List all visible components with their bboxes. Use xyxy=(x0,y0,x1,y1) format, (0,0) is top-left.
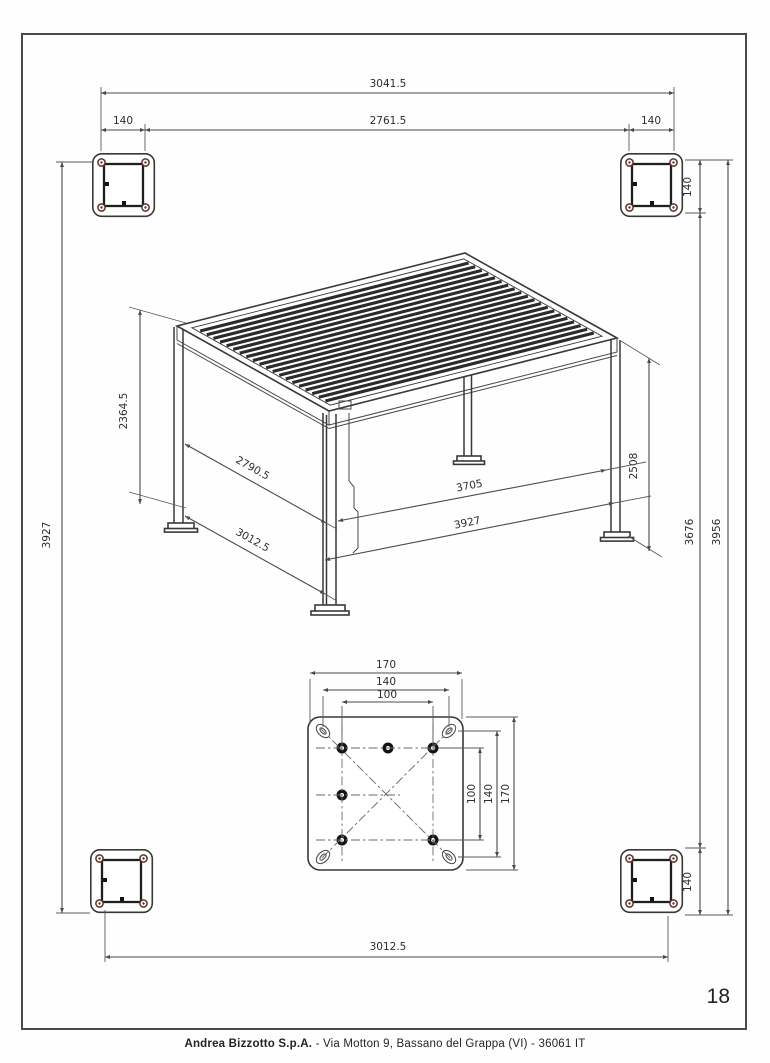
dim-label-depth-outer: 3012.5 xyxy=(234,526,272,554)
corner-plate-top-right xyxy=(621,154,683,217)
dim-side-offset-bottom: 140 xyxy=(682,848,700,915)
dim-label-plate-top-inner: 100 xyxy=(377,689,397,701)
dim-label-side-offset-top: 140 xyxy=(682,177,694,197)
dim-plate-side-mid: 140 xyxy=(483,731,497,857)
dim-label-width-outer: 3927 xyxy=(453,515,482,532)
dim-label-top-offset-left: 140 xyxy=(113,115,133,127)
dim-bottom-span: 3012.5 xyxy=(105,910,668,962)
dim-depth-outer: 3012.5 xyxy=(185,516,337,601)
dim-width-outer: 3927 xyxy=(325,496,651,560)
dim-label-rear-post-height: 2364.5 xyxy=(118,393,130,430)
dim-plate-top-outer: 170 xyxy=(310,659,462,673)
dim-side-offset-top: 140 xyxy=(682,160,700,213)
dim-label-top-inner: 2761.5 xyxy=(370,115,407,127)
dim-left-span: 3927 xyxy=(41,162,92,913)
dim-plate-top-mid: 140 xyxy=(323,676,449,690)
corner-plate-bottom-left xyxy=(91,850,153,913)
dim-plate-top-inner: 100 xyxy=(342,689,433,702)
corner-plate-bottom-right xyxy=(621,850,683,913)
dim-top-offset-right: 140 xyxy=(629,115,674,130)
base-plate-detail: 170 140 100 100 140 xyxy=(308,659,518,870)
corner-plate-top-left xyxy=(93,154,155,217)
dim-depth-inner: 2790.5 xyxy=(185,444,337,529)
dim-label-side-overall: 3956 xyxy=(711,518,723,545)
footer-company: Andrea Bizzotto S.p.A. xyxy=(184,1038,312,1050)
dim-front-post-height: 2508 xyxy=(621,341,662,557)
dim-label-plate-side-inner: 100 xyxy=(466,784,478,804)
dim-label-top-offset-right: 140 xyxy=(641,115,661,127)
dim-width-inner: 3705 xyxy=(338,462,646,521)
footer-address: Andrea Bizzotto S.p.A. - Via Motton 9, B… xyxy=(0,1038,770,1050)
dim-rear-post-height: 2364.5 xyxy=(118,307,186,508)
dim-label-bottom-span: 3012.5 xyxy=(370,941,407,953)
dim-label-front-post-height: 2508 xyxy=(628,453,640,480)
dim-label-plate-side-outer: 170 xyxy=(500,784,512,804)
dim-label-side-offset-bottom: 140 xyxy=(682,872,694,892)
dim-label-left-span: 3927 xyxy=(41,522,53,549)
dim-plate-side-inner: 100 xyxy=(466,748,480,840)
dim-top-offset-left: 140 xyxy=(101,115,145,130)
dim-label-width-inner: 3705 xyxy=(455,478,484,495)
dim-plate-side-outer: 170 xyxy=(500,717,514,870)
dim-label-plate-top-mid: 140 xyxy=(376,676,396,688)
dim-label-top-overall: 3041.5 xyxy=(370,78,407,90)
dim-side-inner: 3676 xyxy=(684,213,700,848)
dim-label-side-inner: 3676 xyxy=(684,518,696,545)
dim-label-plate-side-mid: 140 xyxy=(483,784,495,804)
dim-side-overall: 3956 xyxy=(711,160,728,915)
crank-handle xyxy=(349,413,358,553)
dim-top-inner: 2761.5 xyxy=(145,115,629,130)
dim-top-overall: 3041.5 xyxy=(101,78,674,93)
footer-address-text: - Via Motton 9, Bassano del Grappa (VI) … xyxy=(312,1038,585,1050)
dim-label-plate-top-outer: 170 xyxy=(376,659,396,671)
pergola-isometric xyxy=(165,253,634,615)
page-number: 18 xyxy=(707,985,730,1009)
dim-label-depth-inner: 2790.5 xyxy=(234,454,272,482)
technical-drawing: 3041.5 140 2761.5 140 3927 xyxy=(0,0,770,1063)
drawing-sheet: 3041.5 140 2761.5 140 3927 xyxy=(0,0,770,1063)
